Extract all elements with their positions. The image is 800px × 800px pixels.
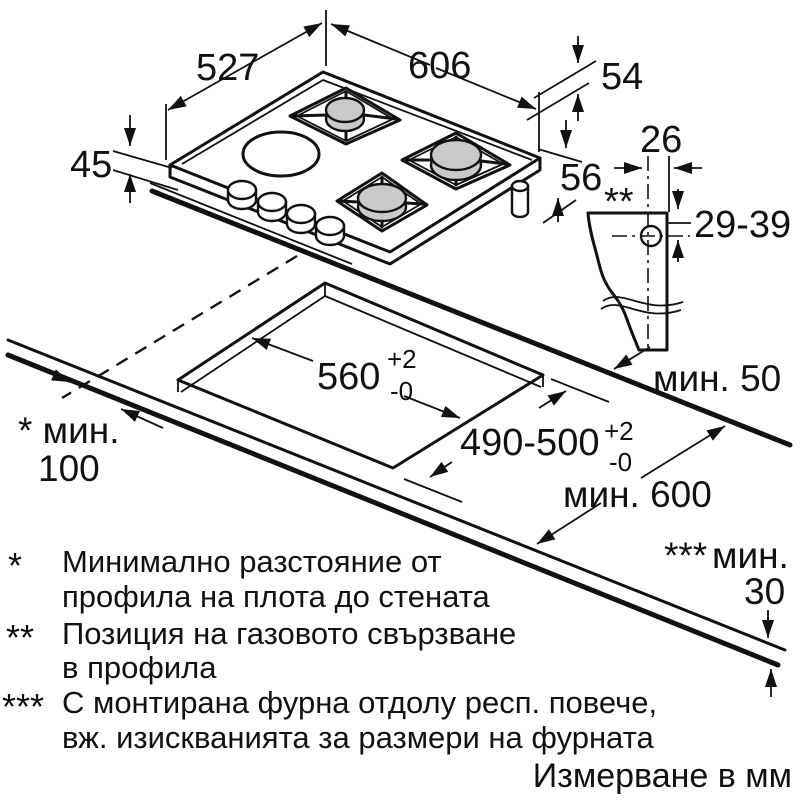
hob-body-lip [170,158,540,264]
burner-bottom [337,173,427,231]
burner-right [402,133,510,189]
footnote-2-line-1: Позиция на газовото свързване [62,616,516,651]
dim-cutout-depth-minus: -0 [609,447,632,477]
dim-hob-height: 45 [70,144,112,186]
dim-min-right: мин. 50 [653,358,781,399]
footnote-marker-2: ** [6,617,34,658]
footnote-1-line-2: профила на плота до стената [62,579,491,614]
knob [258,193,286,221]
dim-thick-value: 30 [744,571,785,612]
dim-cutout-depth: 490-500 [460,422,599,464]
footnote-marker-3: *** [2,686,44,727]
dim-min-left-value: 100 [38,448,100,489]
dim-thick-marker: *** [664,535,707,576]
hob-drawing [170,72,540,264]
dim-min-depth: мин. 600 [563,474,712,515]
footnotes: * Минимално разстояние от профила на пло… [2,544,792,795]
footnote-2-line-2: в профила [62,650,217,685]
control-knobs [228,181,344,245]
dim-hob-width: 606 [408,45,471,87]
footnote-3-line-2: вж. изискванията за размери на фурната [62,720,654,755]
footnote-3-line-1: С монтирана фурна отдолу респ. повече, [62,685,657,720]
dim-min-left-label: * мин. [18,410,120,451]
dim-cutout-width-plus: +2 [387,344,417,374]
gas-position-marker: ** [604,181,634,223]
knob [228,181,256,209]
dim-cutout-depth-plus: +2 [604,416,634,446]
footnote-1-line-1: Минимално разстояние от [62,544,442,579]
break-line [601,305,681,314]
units-note: Измерване в мм [533,757,792,795]
installation-diagram: 527 606 45 54 56 26 ** 29-39 [0,0,800,800]
dim-cutout-width-minus: -0 [390,376,413,406]
installation-diagram-page: 527 606 45 54 56 26 ** 29-39 [0,0,800,800]
dim-connection-range: 29-39 [694,204,791,246]
dim-cutout-width: 560 [317,356,380,398]
dim-profile-connection: 56 [560,157,602,199]
dim-connection-width: 26 [640,119,682,161]
knob [287,205,315,233]
dim-hob-depth: 527 [196,47,259,89]
footnote-marker-1: * [8,545,22,586]
dim-thick-label: мин. [712,535,789,576]
knob [316,217,344,245]
hob-circle-zone [243,132,319,176]
dim-profile-front: 54 [601,56,643,98]
gas-pipe [512,181,528,217]
